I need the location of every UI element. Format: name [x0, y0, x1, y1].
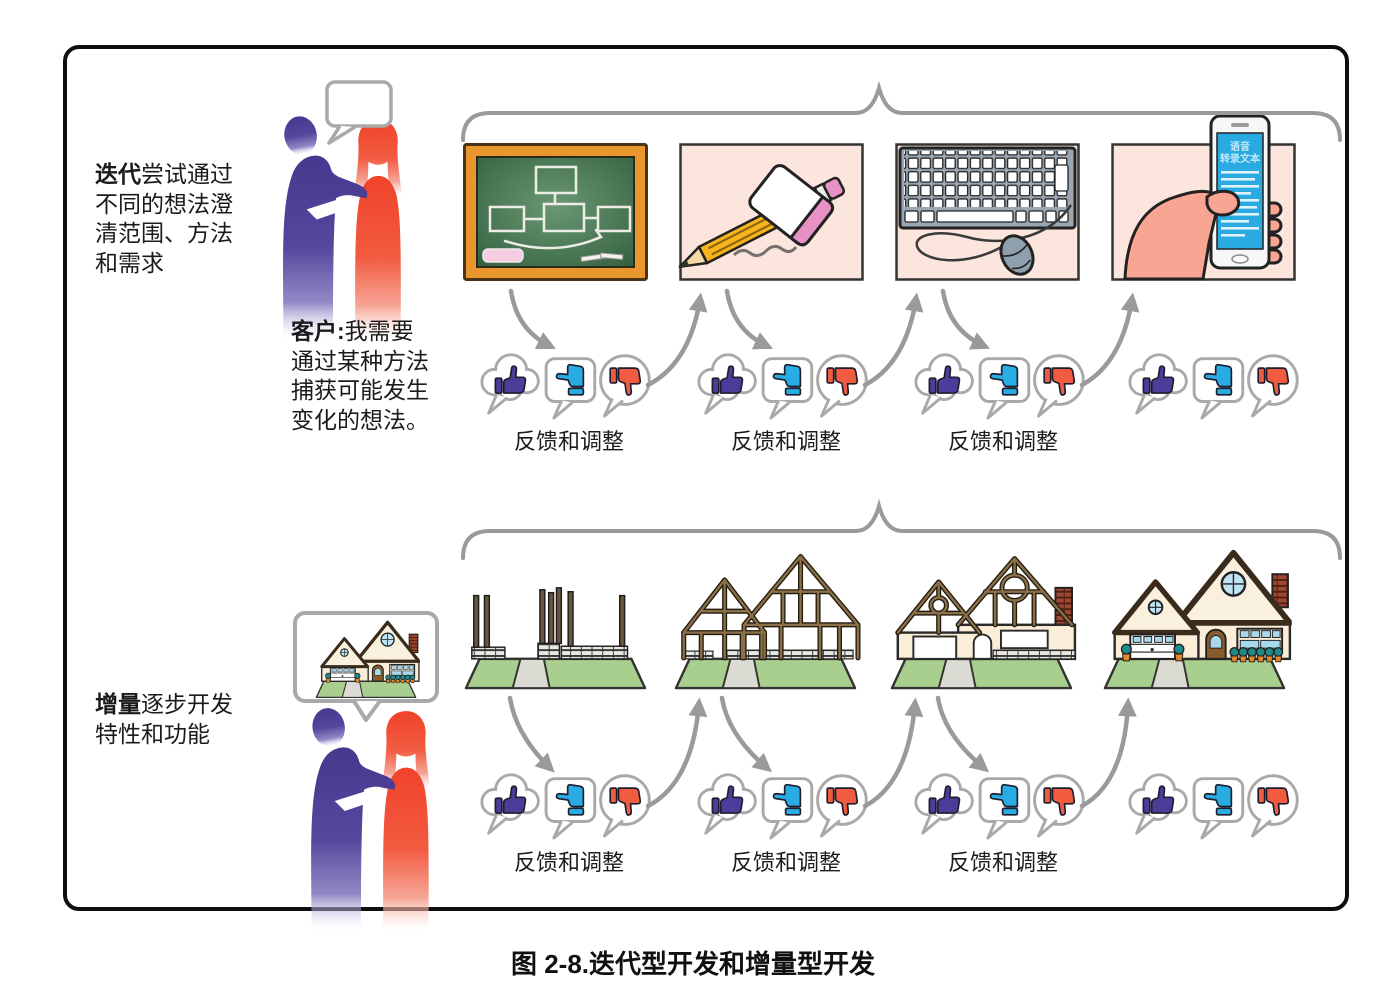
arrow-up-6: [1082, 704, 1128, 806]
brace-top: [463, 88, 1340, 140]
figure-caption: 图 2-8.迭代型开发和增量型开发: [0, 944, 1386, 981]
arrow-down-5: [722, 698, 767, 768]
arrow-up-3: [1082, 299, 1132, 385]
arrow-up-2: [865, 299, 916, 385]
arrow-down-1: [511, 291, 550, 346]
arrow-down-4: [510, 698, 550, 768]
arrow-down-3: [943, 291, 984, 346]
arrow-up-5: [865, 704, 915, 806]
arrow-up-4: [648, 704, 699, 806]
arrow-down-2: [727, 291, 767, 346]
figure-page: 迭代尝试通过 不同的想法澄 清范围、方法 和需求 客户:我需要 通过某种方法 捕…: [0, 0, 1386, 996]
connectors-overlay: [0, 0, 1386, 996]
brace-bottom: [463, 506, 1340, 558]
arrow-down-6: [938, 698, 984, 768]
arrow-up-1: [648, 299, 700, 385]
